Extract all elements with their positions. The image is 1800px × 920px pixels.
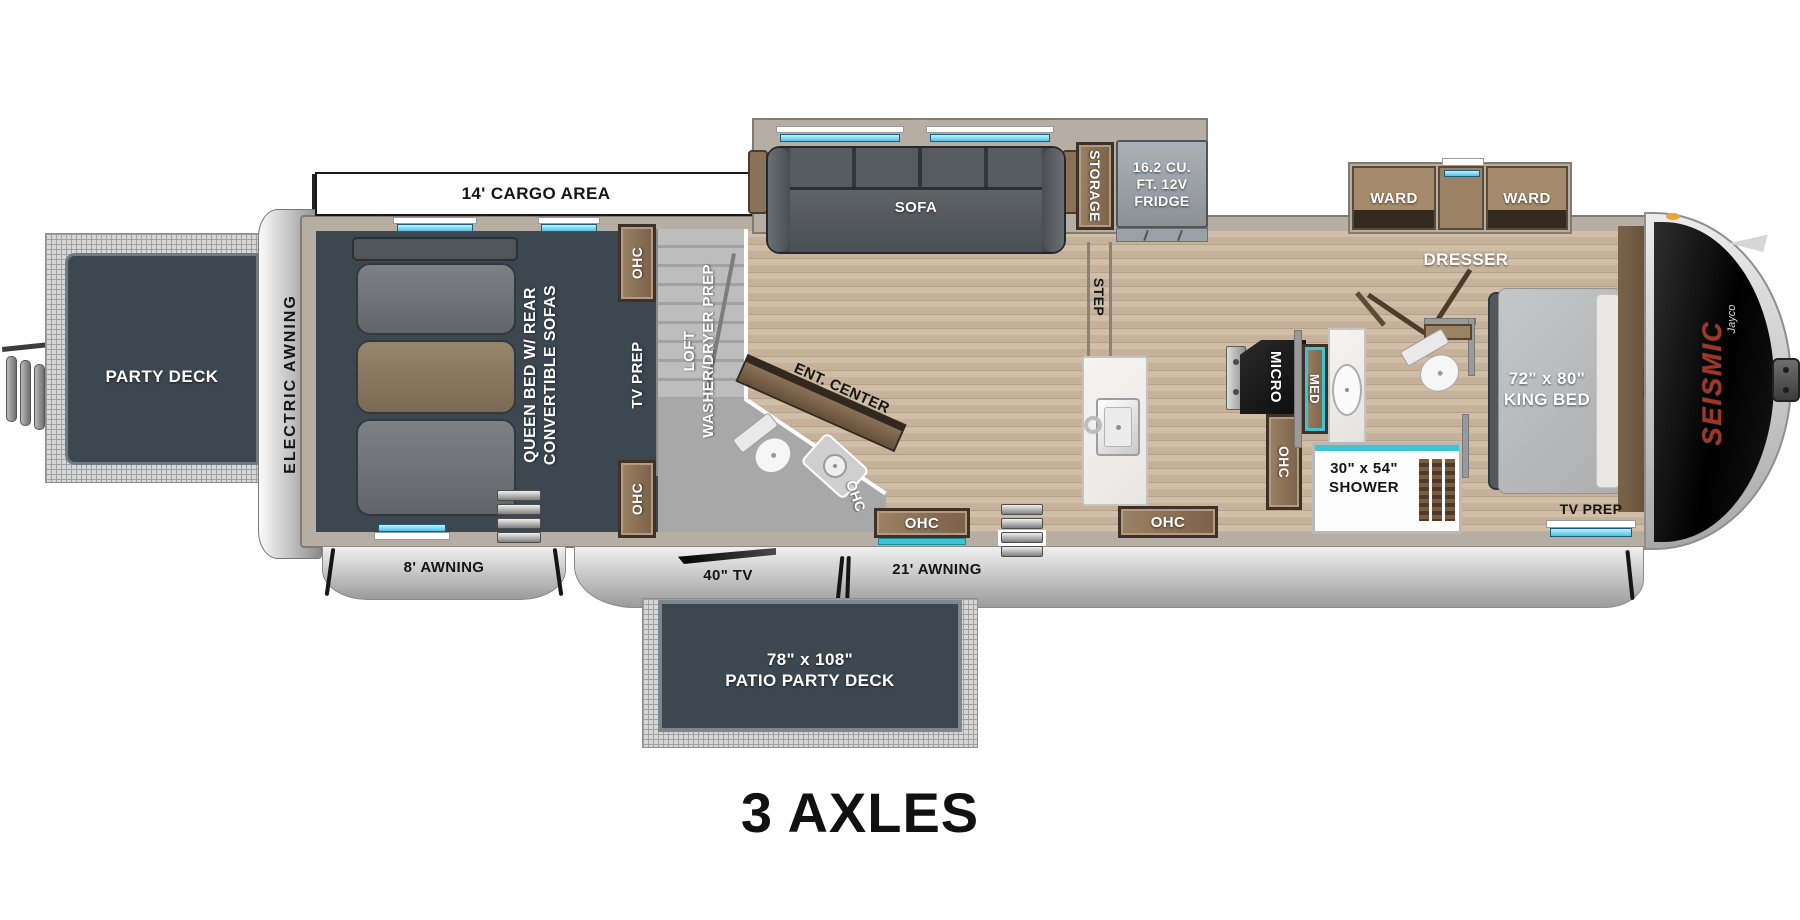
window — [538, 217, 600, 224]
fridge-label: 16.2 CU. FT. 12V FRIDGE — [1116, 146, 1208, 222]
ladder-slat — [6, 356, 17, 422]
electric-awning-label: ELECTRIC AWNING — [281, 234, 301, 534]
queen-bed-cushion — [356, 419, 516, 516]
page-title: 3 AXLES — [660, 776, 1060, 848]
step-tread — [1001, 518, 1043, 529]
ladder-slat — [20, 360, 31, 426]
hitch-pin-icon — [1772, 358, 1800, 402]
ladder-slat — [34, 364, 45, 430]
shower-door-slat — [1445, 459, 1455, 521]
step-tread — [1001, 546, 1043, 557]
sofa-arm — [1042, 148, 1064, 252]
marker-light-icon — [1666, 213, 1680, 220]
sofa-label: SOFA — [866, 198, 966, 216]
loft-label-line2: WASHER/DRYER PREP — [699, 264, 718, 438]
patio-deck-word: PATIO PARTY DECK — [725, 670, 895, 691]
storage-label: STORAGE — [1086, 146, 1104, 226]
queen-bed-headboard — [352, 237, 518, 261]
counter-seam — [1143, 230, 1149, 241]
brand-name: SEISMIC — [1697, 320, 1728, 445]
step-label: STEP — [1090, 269, 1108, 325]
bathroom-wall — [1294, 330, 1302, 448]
ward-label: WARD — [1503, 190, 1550, 207]
brand-sub: Jayco — [1725, 289, 1739, 349]
loft-label-line1: LOFT — [680, 331, 699, 372]
shower-size: 30" x 54" — [1330, 459, 1398, 478]
shower-door-slat — [1432, 459, 1442, 521]
window-glass — [878, 538, 966, 545]
window-glass — [930, 134, 1050, 142]
tv-prep-label-bedroom: TV PREP — [1548, 501, 1634, 517]
hitch-bolt — [1783, 387, 1789, 393]
ohc-cabinet-bottom-left: OHC — [874, 508, 970, 538]
main-entry-steps — [1001, 504, 1043, 560]
cargo-area-bracket: 14' CARGO AREA — [315, 172, 757, 216]
window — [393, 217, 477, 224]
shower-word: SHOWER — [1329, 478, 1399, 497]
faucet-icon — [1084, 416, 1102, 434]
patio-deck-label: 78" x 108" PATIO PARTY DECK — [710, 648, 910, 692]
window-glass — [1444, 170, 1480, 177]
awning-8ft-label: 8' AWNING — [364, 558, 524, 576]
wardrobe-left: WARD — [1352, 166, 1436, 230]
ward-label: WARD — [1370, 190, 1417, 207]
brand-sub-name: Jayco — [1726, 305, 1738, 334]
queen-bed-label-line1: QUEEN BED W/ REAR — [521, 287, 541, 463]
step-tread — [1001, 532, 1043, 543]
ohc-cabinet-bottom-right: OHC — [1118, 506, 1218, 538]
shower-glass-edge — [1315, 445, 1459, 451]
range-knob — [1233, 359, 1239, 365]
vanity-sink-icon — [1332, 364, 1362, 416]
counter-seam — [1177, 230, 1183, 241]
party-deck — [65, 253, 259, 465]
step-rail — [1109, 242, 1112, 356]
ohc-label: OHC — [627, 233, 647, 293]
sofa-arm — [768, 148, 790, 252]
ohc-label: OHC — [905, 515, 940, 532]
garage-entry-steps — [497, 490, 541, 546]
tv-prep-label-garage: TV PREP — [627, 320, 647, 430]
queen-bed-label: QUEEN BED W/ REAR CONVERTIBLE SOFAS — [520, 265, 562, 485]
awning-21ft-label: 21' AWNING — [872, 560, 1002, 578]
rv-floorplan-diagram: PARTY DECK ELECTRIC AWNING 14' CARGO ARE… — [0, 0, 1800, 920]
king-bed-size: 72" x 80" — [1509, 368, 1585, 389]
sofa-side-table — [748, 150, 768, 214]
hitch-bolt — [1783, 367, 1789, 373]
shower-label: 30" x 54" SHOWER — [1314, 456, 1414, 500]
queen-bed-label-line2: CONVERTIBLE SOFAS — [541, 285, 561, 465]
sofa-back-cushions — [790, 148, 1042, 190]
queen-bed-cushion — [356, 263, 516, 335]
step-tread — [497, 532, 541, 543]
window-glass — [541, 224, 597, 232]
axles-title-text: 3 AXLES — [741, 780, 979, 845]
patio-deck-size: 78" x 108" — [767, 649, 853, 670]
step-tread — [497, 518, 541, 529]
window-glass — [397, 224, 473, 232]
window-glass — [780, 134, 900, 142]
bed-wall — [1462, 414, 1469, 478]
micro-label: MICRO — [1267, 345, 1285, 409]
step-tread — [497, 504, 541, 515]
party-deck-label: PARTY DECK — [72, 367, 252, 387]
window — [1442, 158, 1484, 166]
dresser-label: DRESSER — [1418, 251, 1514, 269]
med-label: MED — [1306, 367, 1324, 411]
range-knob — [1233, 389, 1239, 395]
window — [374, 532, 450, 540]
window — [926, 126, 1054, 133]
kitchen-sink-icon — [1096, 398, 1140, 456]
queen-bed-cushion — [356, 340, 516, 414]
ohc-label: OHC — [627, 469, 647, 529]
brand-logo: SEISMIC — [1697, 288, 1727, 478]
fridge-label-line1: 16.2 CU. — [1133, 159, 1191, 176]
king-bed-word: KING BED — [1504, 389, 1590, 410]
king-bed-label: 72" x 80" KING BED — [1494, 368, 1600, 410]
tv-40-label: 40" TV — [678, 566, 778, 584]
wardrobe-right: WARD — [1486, 166, 1568, 230]
window — [1546, 520, 1636, 528]
fridge-label-line2: FT. 12V — [1136, 176, 1187, 193]
window — [776, 126, 904, 133]
step-tread — [497, 490, 541, 501]
shower-door-slat — [1419, 459, 1429, 521]
loft-label: LOFT WASHER/DRYER PREP — [679, 246, 719, 456]
ohc-label: OHC — [1151, 514, 1186, 531]
step-tread — [1001, 504, 1043, 515]
fridge-counter — [1116, 228, 1208, 242]
ohc-label: OHC — [1275, 432, 1293, 492]
fridge-label-line3: FRIDGE — [1134, 193, 1189, 210]
window-glass — [378, 524, 446, 532]
window-glass — [1550, 528, 1632, 537]
